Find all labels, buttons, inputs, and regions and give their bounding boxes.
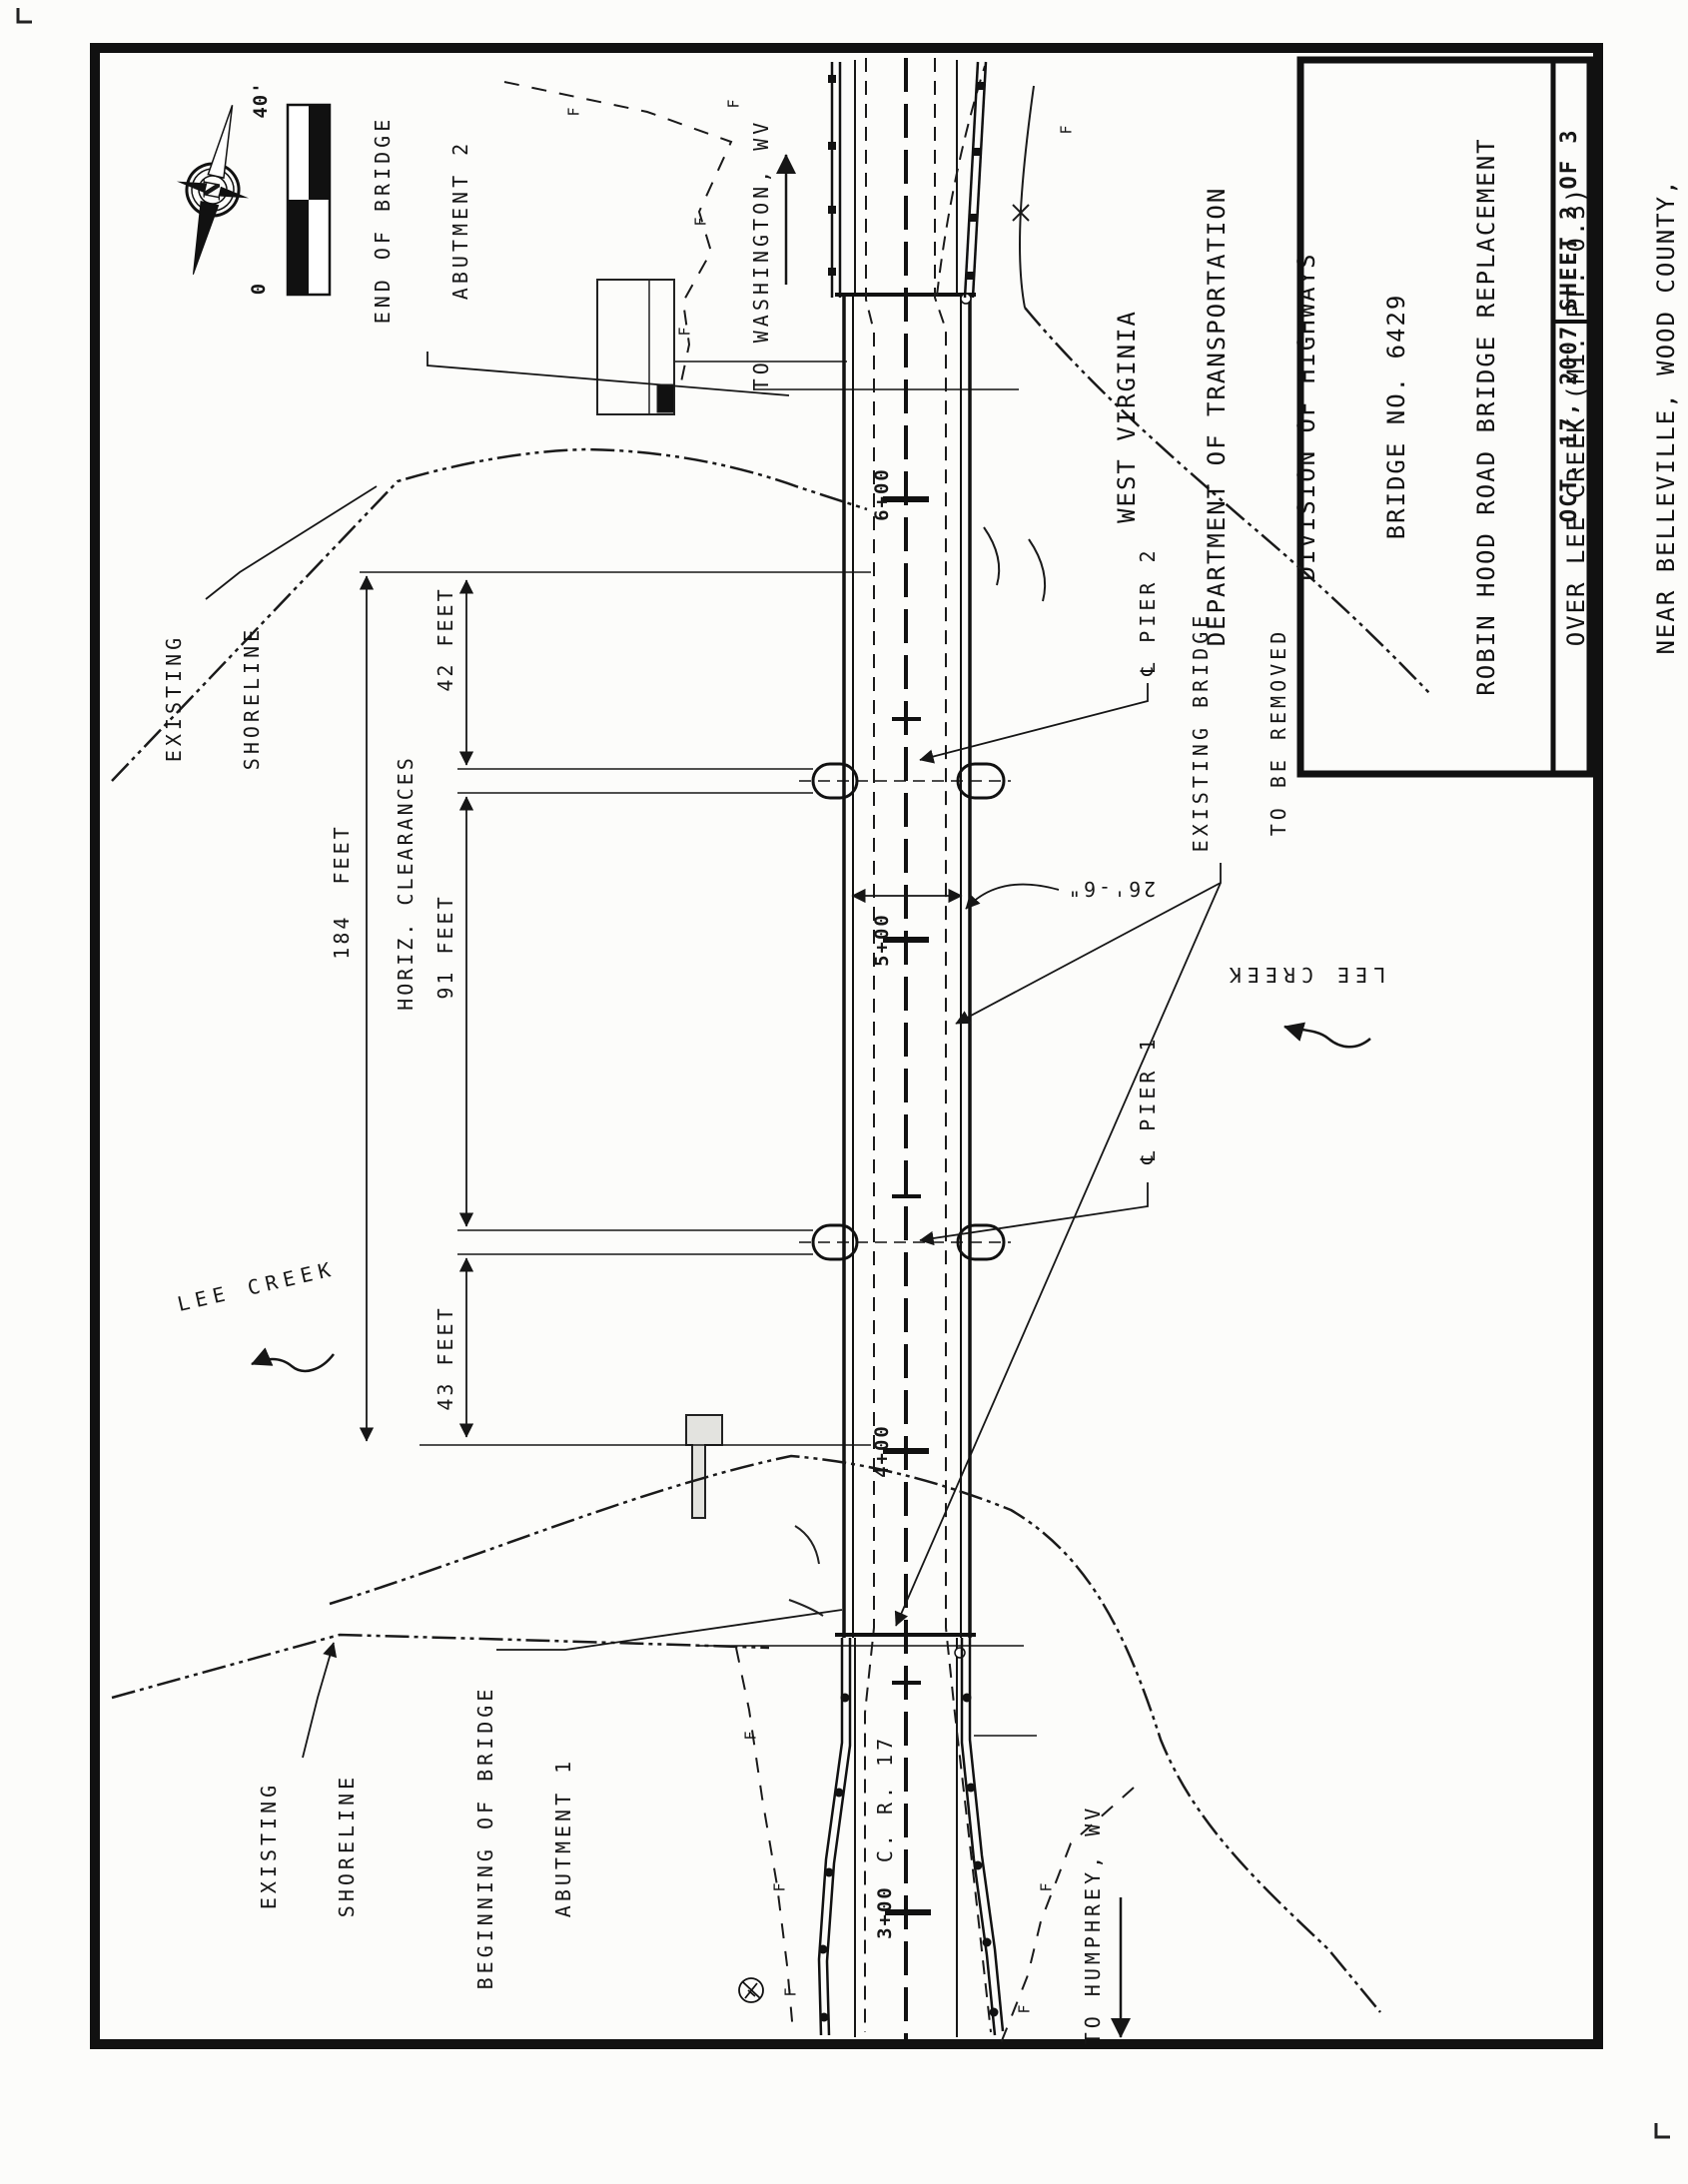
- overall-dimension-label: 184 FEET: [329, 824, 355, 959]
- span-a-dimension-label: 42 FEET: [432, 586, 458, 691]
- existing-shoreline-bottom-line2: SHORELINE: [334, 1774, 360, 1917]
- span-b-dimension-label: 91 FEET: [432, 894, 458, 999]
- station-6-label: 6+00: [869, 467, 895, 521]
- existing-shoreline-top-label: EXISTING SHORELINE: [109, 626, 291, 770]
- fence-marker: F: [727, 99, 742, 108]
- title-line-2: DEPARTMENT OF TRANSPORTATION: [1202, 67, 1232, 766]
- road-name-label: C. R. 17: [872, 1735, 898, 1862]
- title-line-4: BRIDGE NO. 6429: [1381, 67, 1411, 766]
- to-washington-label: TO WASHINGTON, WV: [748, 119, 774, 391]
- title-line-5: ROBIN HOOD ROAD BRIDGE REPLACEMENT: [1471, 67, 1501, 766]
- existing-shoreline-bottom-label: EXISTING SHORELINE: [204, 1774, 386, 1917]
- compass-north-letter: N: [200, 180, 226, 200]
- fence-marker: F: [567, 107, 582, 116]
- existing-structures: [597, 280, 823, 1616]
- horiz-clearances-label: HORIZ. CLEARANCES: [393, 755, 419, 1011]
- station-5-label: 5+00: [869, 913, 895, 967]
- plan-sheet: END OF BRIDGE ABUTMENT 2 TO WASHINGTON, …: [0, 0, 1688, 2184]
- fence-marker: F: [694, 217, 709, 226]
- title-line-1: WEST VIRGINIA: [1112, 67, 1142, 766]
- fence-marker: F: [773, 1882, 788, 1891]
- end-of-bridge-line1: END OF BRIDGE: [370, 116, 396, 325]
- tree-icon: [739, 1978, 763, 2002]
- end-of-bridge-line2: ABUTMENT 2: [447, 116, 473, 325]
- beginning-of-bridge-line1: BEGINNING OF BRIDGE: [472, 1686, 498, 1990]
- fence-marker: F: [1040, 1882, 1055, 1891]
- beginning-of-bridge-label: BEGINNING OF BRIDGE ABUTMENT 1: [421, 1686, 602, 1990]
- scale-max-label: 40': [248, 81, 274, 118]
- station-3-label: 3+00: [872, 1885, 898, 1939]
- guardrails: [819, 62, 1004, 2035]
- title-block-text: WEST VIRGINIA DEPARTMENT OF TRANSPORTATI…: [1052, 67, 1688, 766]
- existing-shoreline-top-line1: EXISTING: [161, 626, 187, 770]
- pier1-label: ℄ PIER 1: [1135, 1035, 1161, 1163]
- fence-marker: F: [744, 1731, 759, 1740]
- existing-shoreline-top-line2: SHORELINE: [239, 626, 265, 770]
- creek-bank-contours: [984, 86, 1045, 601]
- beginning-of-bridge-line2: ABUTMENT 1: [550, 1686, 576, 1990]
- span-c-dimension-label: 43 FEET: [432, 1305, 458, 1410]
- title-line-7: NEAR BELLEVILLE, WOOD COUNTY,: [1651, 67, 1681, 766]
- title-line-3: DIVISION OF HIGHWAYS: [1291, 67, 1321, 766]
- fence-marker: F: [678, 327, 693, 336]
- station-4-label: 4+00: [869, 1424, 895, 1478]
- end-of-bridge-label: END OF BRIDGE ABUTMENT 2: [318, 116, 499, 325]
- lee-creek-right-label: LEE CREEK: [1224, 962, 1385, 988]
- fence-marker: F: [1018, 2004, 1033, 2013]
- bridge-deck: [674, 294, 1037, 1736]
- fence-marker: F: [784, 1987, 799, 1996]
- to-humphrey-label: TO HUMPHREY, WV: [1080, 1805, 1106, 2045]
- existing-shoreline-bottom-line1: EXISTING: [256, 1774, 282, 1917]
- bridge-width-dimension-label: 26'-6": [1066, 876, 1156, 902]
- scale-min-label: 0: [246, 283, 272, 295]
- title-block-sheet: SHEET 2 OF 3: [1557, 129, 1583, 312]
- title-block-date: OCT. 17, 2007: [1557, 325, 1583, 522]
